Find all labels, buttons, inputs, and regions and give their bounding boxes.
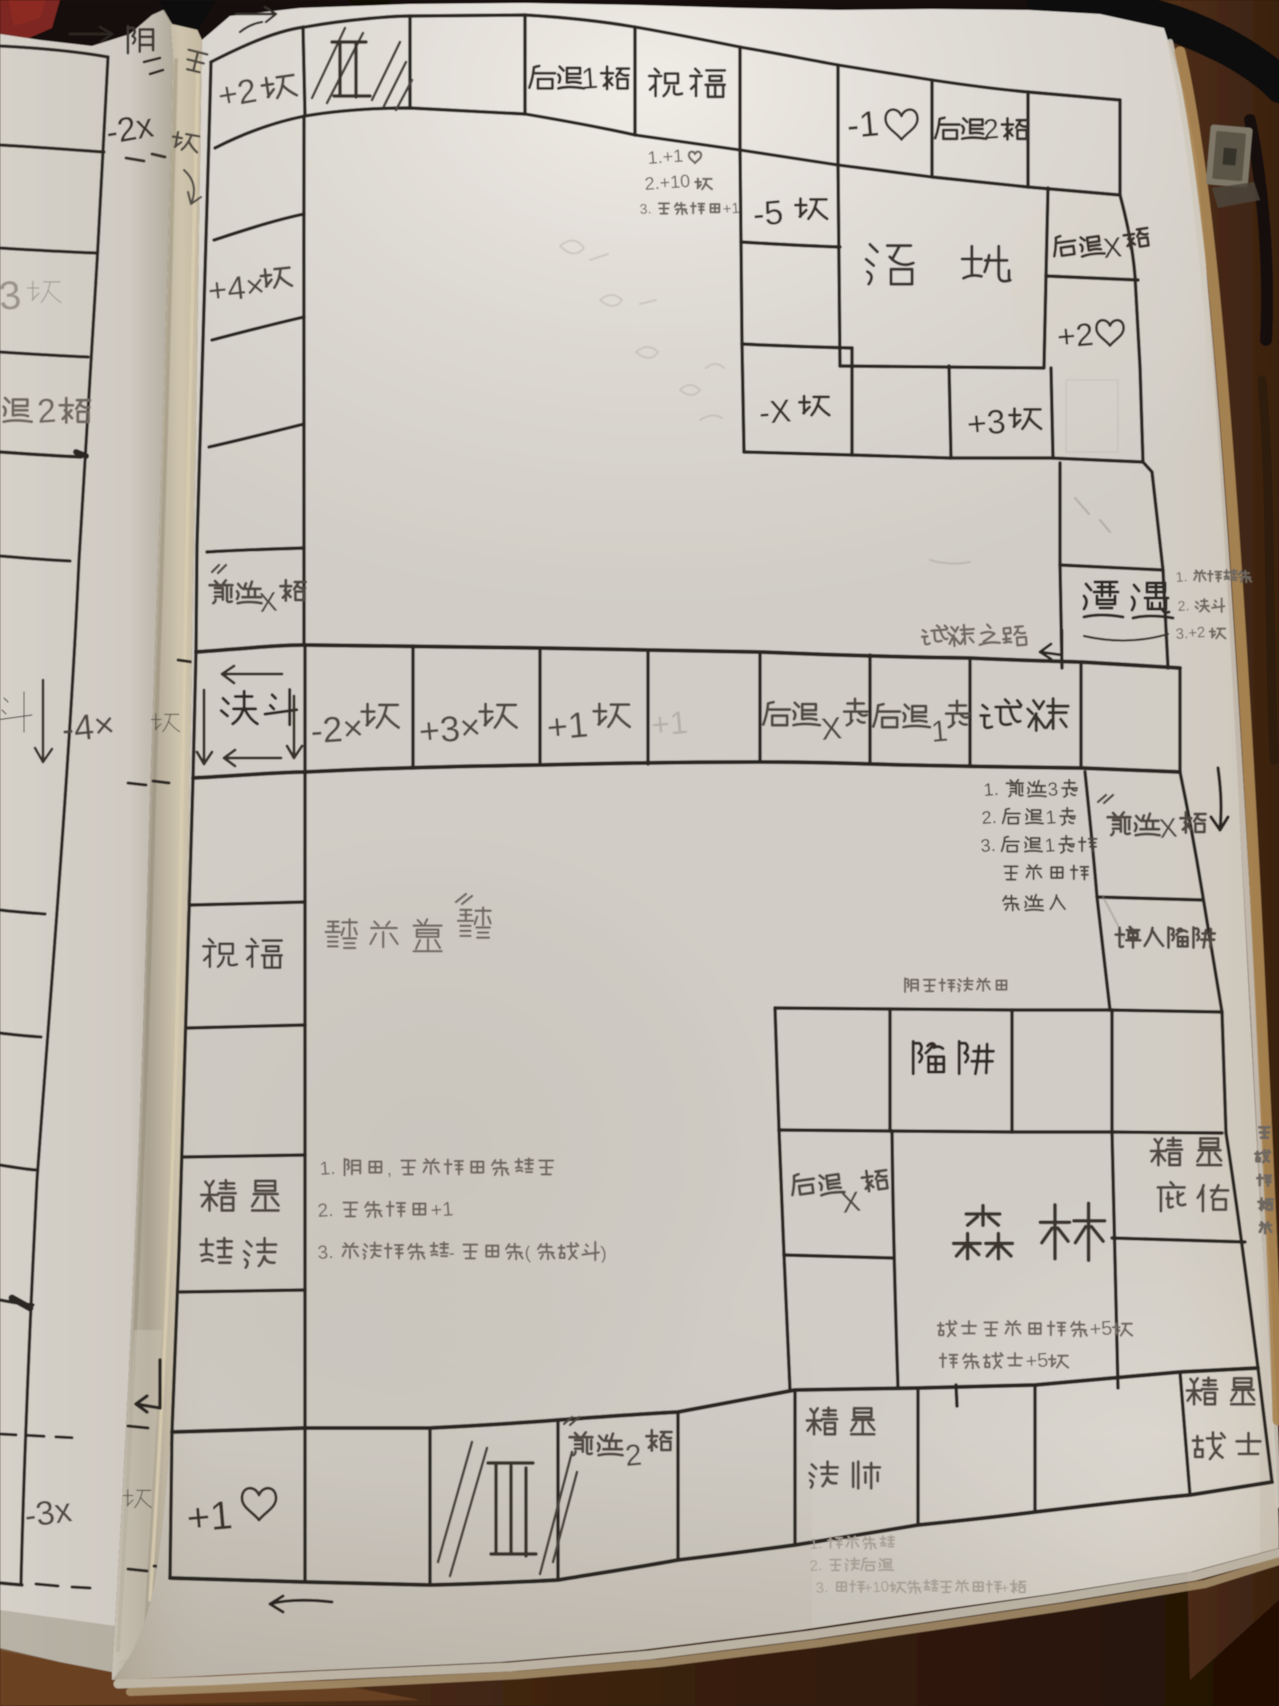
svg-text:+2: +2 — [215, 72, 260, 116]
svg-text:1: 1 — [1045, 807, 1057, 829]
svg-text:3.+2: 3.+2 — [1175, 624, 1206, 643]
svg-text:+1: +1 — [649, 704, 688, 743]
svg-text:+1: +1 — [545, 704, 589, 748]
svg-text:X: X — [820, 710, 844, 747]
svg-text:1.+1: 1.+1 — [647, 146, 684, 168]
svg-text:X: X — [1158, 813, 1179, 844]
svg-text:+5: +5 — [1025, 1349, 1049, 1373]
svg-text:2: 2 — [624, 1439, 644, 1473]
svg-text:+1: +1 — [722, 200, 740, 218]
svg-text:+: + — [1000, 1579, 1009, 1596]
svg-text:2.+10: 2.+10 — [644, 171, 691, 194]
svg-text:+5: +5 — [1089, 1317, 1113, 1341]
svg-text:2.: 2. — [1177, 597, 1190, 614]
svg-text:1.: 1. — [1175, 568, 1188, 585]
svg-text:-X: -X — [757, 392, 792, 431]
svg-text:3.: 3. — [639, 200, 652, 217]
svg-text:-5: -5 — [751, 193, 784, 233]
svg-text:2.: 2. — [981, 807, 997, 828]
svg-text:X: X — [1102, 231, 1124, 264]
svg-text:+10: +10 — [863, 1578, 890, 1597]
svg-text:2.: 2. — [809, 1557, 823, 1575]
svg-text:X: X — [258, 587, 279, 618]
svg-text:3.: 3. — [980, 835, 996, 856]
svg-text:1.: 1. — [319, 1158, 336, 1180]
svg-text:-2×: -2× — [309, 707, 365, 752]
svg-text:-2x: -2x — [103, 107, 156, 153]
svg-text:1: 1 — [930, 715, 950, 749]
svg-text:3: 3 — [0, 273, 23, 319]
svg-text:2.: 2. — [317, 1200, 334, 1222]
svg-text:+3×: +3× — [417, 706, 482, 752]
svg-text:3: 3 — [1047, 779, 1059, 801]
svg-text:+2: +2 — [1055, 316, 1094, 355]
svg-text:+1: +1 — [430, 1198, 454, 1222]
svg-text:2: 2 — [982, 113, 1000, 145]
svg-text:-1: -1 — [845, 102, 880, 146]
svg-text:+3: +3 — [965, 403, 1007, 444]
svg-text:1: 1 — [580, 62, 599, 96]
svg-text:1.: 1. — [809, 1535, 823, 1553]
svg-text:3.: 3. — [815, 1579, 829, 1597]
svg-text:+4×: +4× — [206, 266, 266, 309]
svg-text:-4×: -4× — [60, 703, 117, 749]
svg-text:-3x: -3x — [22, 1491, 74, 1535]
svg-text:+1: +1 — [185, 1493, 234, 1541]
svg-text:2: 2 — [36, 392, 58, 431]
svg-text:1.: 1. — [983, 779, 999, 800]
svg-text:1: 1 — [1044, 835, 1056, 857]
svg-text:3.: 3. — [317, 1242, 334, 1264]
